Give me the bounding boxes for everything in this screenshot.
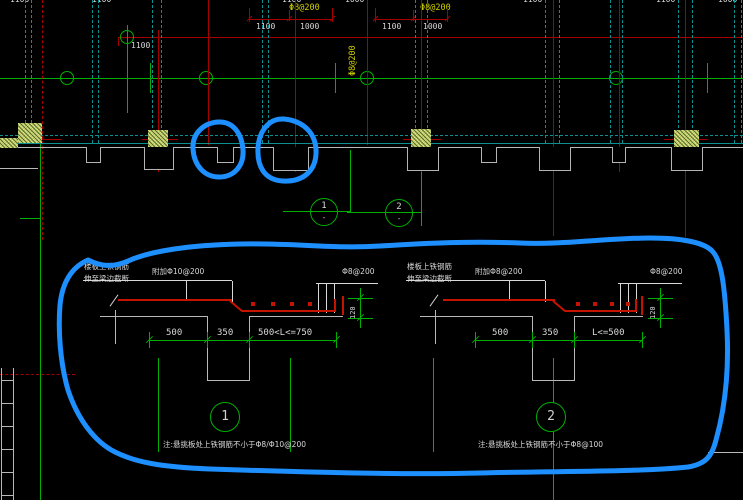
- stirrup-dot: [576, 302, 580, 306]
- detail-number: 2: [547, 409, 555, 424]
- dim-ext: [332, 8, 333, 22]
- leader-line: [232, 281, 233, 302]
- rebar-hook: [635, 299, 637, 311]
- stair-step: [1, 449, 13, 450]
- leader-line: [83, 280, 232, 281]
- cut-dim-label: 1100: [10, 0, 29, 4]
- added-rebar: [565, 310, 637, 312]
- axis-dashed-line: [734, 0, 735, 143]
- panel-bottom-extension: [708, 452, 743, 453]
- stair-edge: [13, 368, 14, 500]
- axis-dashed-line: [25, 0, 26, 143]
- rebar-note-line2: 伸至梁边截断: [407, 275, 452, 283]
- structure-line-red: [208, 0, 209, 145]
- beam-outline: [207, 380, 250, 381]
- section-leader: [350, 150, 351, 212]
- grid-node: [199, 71, 213, 85]
- dim-text: 350: [542, 329, 558, 338]
- axis-dashed-line: [98, 0, 99, 143]
- edge-bar-label: Φ8@200: [650, 268, 683, 276]
- hook-bar: [326, 284, 327, 313]
- stirrup-dot: [271, 302, 275, 306]
- rebar-bend: [229, 300, 243, 312]
- dim-line: [149, 340, 337, 341]
- hook-bar: [628, 284, 629, 313]
- axis-dashed-line: [262, 0, 263, 143]
- stair-edge: [1, 368, 2, 500]
- stair-step: [1, 426, 13, 427]
- section-cut-line: [283, 211, 310, 212]
- slab-edge-bar: [342, 296, 344, 315]
- grid-node: [60, 71, 74, 85]
- beam-outline: [574, 316, 575, 381]
- dim-line: [360, 288, 361, 328]
- wall-hatch: [0, 138, 18, 148]
- grid-line-green: [433, 358, 434, 452]
- bubble-dash: -: [386, 214, 412, 223]
- grid-tick: [335, 63, 336, 93]
- section-number: 1: [311, 201, 337, 211]
- slab-outline: [249, 316, 343, 317]
- offset-dim-text: 1100: [131, 42, 150, 50]
- section-number: 2: [386, 202, 412, 212]
- centerline-red-dashed: [42, 0, 43, 240]
- bubble-divider: [311, 211, 337, 212]
- dim-text: 500: [492, 329, 508, 338]
- rebar-callout: Φ8@200: [289, 4, 320, 13]
- offset-line-hook: [118, 37, 119, 46]
- wall-edge: [0, 168, 38, 169]
- stair-step: [1, 472, 13, 473]
- grid-tick: [707, 63, 708, 93]
- axis-dashed-line: [678, 0, 679, 143]
- dim-ext: [447, 8, 448, 22]
- column-hatch: [411, 129, 431, 149]
- section-bubble-1: 1 -: [310, 198, 338, 226]
- dim-line: [660, 288, 661, 328]
- detail-note: 注:悬挑板处上铁钢筋不小于Φ8@100: [478, 441, 603, 449]
- top-rebar: [118, 299, 232, 301]
- dim-text: L<=500: [592, 329, 625, 338]
- top-rebar: [443, 299, 555, 301]
- beam-stub: [86, 147, 101, 163]
- axis-dashed-line: [415, 0, 416, 143]
- grid-line-green: [40, 143, 41, 500]
- dim-text: 120: [350, 299, 357, 319]
- bubble-dash: -: [311, 213, 337, 222]
- hook-bar: [318, 284, 319, 313]
- slab-edge-gray: [0, 147, 743, 148]
- grid-node: [609, 71, 623, 85]
- beam-outline: [532, 380, 575, 381]
- cut-dim-label: 1100: [523, 0, 542, 4]
- axis-dashed-line: [268, 0, 269, 143]
- stirrup-dot: [626, 302, 630, 306]
- edge-bar-label: Φ8@200: [342, 268, 375, 276]
- slab-edge-bar: [641, 296, 643, 315]
- beam-stub: [612, 147, 626, 163]
- slab-edge-teal: [0, 143, 743, 144]
- beam-outline: [249, 316, 250, 381]
- stirrup-dot: [290, 302, 294, 306]
- leader-line: [186, 281, 187, 300]
- axis-dashed-line: [152, 0, 153, 143]
- stair-step: [1, 380, 13, 381]
- rebar-bend: [552, 300, 566, 312]
- beam-stub: [539, 147, 571, 171]
- beam-stub: [671, 147, 703, 171]
- beam-stub: [144, 147, 174, 170]
- dim-text: 500<L<=750: [258, 329, 312, 338]
- rebar-callout-vertical: Φ8@200: [349, 40, 358, 76]
- dim-text: 500: [166, 329, 182, 338]
- leader-line: [509, 281, 510, 300]
- section-leader: [421, 172, 422, 226]
- offset-line: [118, 37, 743, 38]
- cut-dim-label: 1100: [656, 0, 675, 4]
- axis-dashed-line: [610, 0, 611, 143]
- axis-dashed-line: [741, 0, 742, 143]
- beam-stub: [273, 147, 309, 171]
- added-bar-label: 附加Φ10@200: [152, 268, 204, 276]
- rebar-note-line1: 楼板上铁钢筋: [407, 263, 452, 271]
- dim-ext: [375, 8, 376, 22]
- rebar-note-line1: 楼板上铁钢筋: [84, 263, 129, 271]
- slab-outline: [435, 310, 436, 344]
- stair-step: [1, 403, 13, 404]
- beam-stub: [407, 147, 439, 171]
- column-centerline: [685, 0, 686, 237]
- dim-line: [475, 340, 643, 341]
- added-bar-label: 附加Φ8@200: [475, 268, 523, 276]
- axis-dashed-line: [692, 0, 693, 143]
- detail-bubble-1: 1: [210, 402, 240, 432]
- axis-dashed-line: [92, 0, 93, 143]
- detail-note: 注:悬挑板处上铁钢筋不小于Φ8/Φ10@200: [163, 441, 306, 449]
- beam-stub: [481, 147, 497, 163]
- dim-text: 350: [217, 329, 233, 338]
- rebar-note-line2: 伸至梁边截断: [84, 275, 129, 283]
- structure-line-red: [553, 0, 554, 236]
- slab-outline: [115, 310, 116, 344]
- grid-line-green: [158, 358, 159, 452]
- stirrup-dot: [593, 302, 597, 306]
- grid-line-green: [553, 452, 554, 500]
- axis-dashed-line: [427, 0, 428, 143]
- beam-outline: [532, 316, 533, 381]
- grid-line-green: [127, 25, 128, 113]
- stirrup-dot: [251, 302, 255, 306]
- stirrup-dot: [610, 302, 614, 306]
- slab-outline: [574, 316, 643, 317]
- dim-text: 1100: [382, 23, 401, 31]
- slab-outline: [420, 316, 532, 317]
- grid-tick: [150, 63, 151, 93]
- leader-line: [406, 280, 545, 281]
- cut-dim-label: 1100: [92, 0, 111, 4]
- dim-text: 120: [650, 299, 657, 319]
- detail-bubble-2: 2: [536, 402, 566, 432]
- axis-dashed-line: [161, 0, 162, 143]
- axis-dashed-line: [31, 0, 32, 143]
- axis-dashed-line: [545, 0, 546, 143]
- dim-ext: [249, 8, 250, 22]
- bubble-divider: [386, 212, 412, 213]
- stair-step: [1, 495, 13, 496]
- added-rebar: [242, 310, 336, 312]
- grid-line-green: [290, 358, 291, 452]
- slab-dashed-edge: [0, 135, 743, 136]
- hook-bar: [620, 284, 621, 313]
- slab-outline: [100, 316, 207, 317]
- axis-dashed-line: [622, 0, 623, 143]
- column-hatch: [18, 123, 42, 143]
- dim-text: 1000: [300, 23, 319, 31]
- section-bubble-2: 2 -: [385, 199, 413, 227]
- section-cut-line: [347, 212, 385, 213]
- structure-line-red: [367, 0, 368, 145]
- stirrup-dot: [308, 302, 312, 306]
- dim-text: 1000: [423, 23, 442, 31]
- detail-number: 1: [221, 409, 229, 424]
- dim-text: 1100: [256, 23, 275, 31]
- cut-dim-label: 1000: [345, 0, 364, 4]
- detail-panel-frame: [0, 0, 636, 215]
- axis-dashed-line: [559, 0, 560, 143]
- beam-stub: [217, 147, 234, 163]
- grid-tick: [20, 218, 40, 219]
- rebar-hook: [334, 299, 336, 311]
- beam-outline: [207, 316, 208, 381]
- break-symbol: [430, 294, 439, 306]
- stair-centerline: [0, 374, 75, 375]
- cad-canvas: 1100 1100 1100 1000 1100 1100 1000 Φ8@20…: [0, 0, 743, 500]
